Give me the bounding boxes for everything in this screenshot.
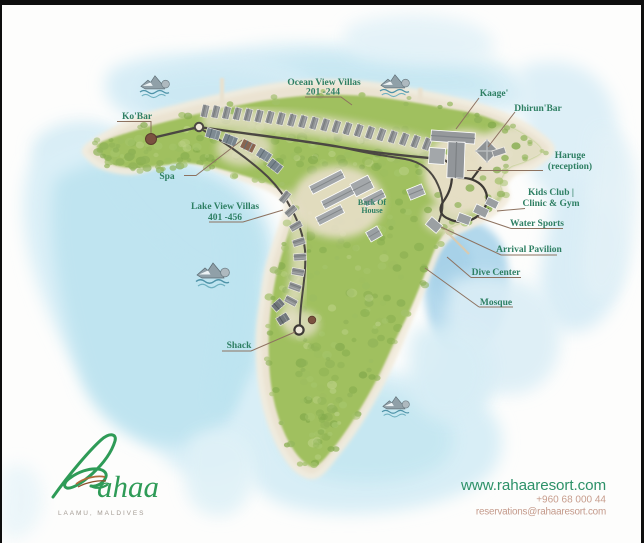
svg-text:Shack: Shack	[227, 341, 253, 351]
svg-text:LAAMU, MALDIVES: LAAMU, MALDIVES	[58, 510, 145, 517]
svg-text:Dive Center: Dive Center	[472, 268, 522, 278]
svg-text:Haruge: Haruge	[555, 151, 586, 161]
svg-text:www.rahaaresort.com: www.rahaaresort.com	[460, 477, 606, 494]
svg-text:Ko'Bar: Ko'Bar	[122, 112, 153, 122]
svg-text:House: House	[361, 206, 383, 215]
svg-text:Arrival Pavilion: Arrival Pavilion	[496, 245, 562, 255]
svg-text:Lake View Villas: Lake View Villas	[191, 202, 259, 212]
svg-text:Clinic & Gym: Clinic & Gym	[523, 199, 580, 209]
svg-text:401 -456: 401 -456	[208, 213, 242, 223]
svg-text:Spa: Spa	[159, 172, 175, 182]
svg-text:Kids Club |: Kids Club |	[528, 188, 574, 198]
svg-text:Ocean View Villas: Ocean View Villas	[287, 78, 361, 88]
svg-text:ahaa: ahaa	[97, 469, 159, 504]
svg-text:Mosque: Mosque	[480, 298, 512, 308]
svg-text:201 -244: 201 -244	[306, 88, 340, 98]
svg-text:reservations@rahaaresort.com: reservations@rahaaresort.com	[476, 507, 606, 518]
svg-text:(reception): (reception)	[548, 161, 592, 172]
svg-text:Kaage': Kaage'	[480, 89, 509, 99]
svg-text:+960 68 000 44: +960 68 000 44	[536, 495, 606, 506]
svg-text:Dhirun'Bar: Dhirun'Bar	[514, 104, 562, 114]
svg-text:Water Sports: Water Sports	[510, 219, 564, 229]
